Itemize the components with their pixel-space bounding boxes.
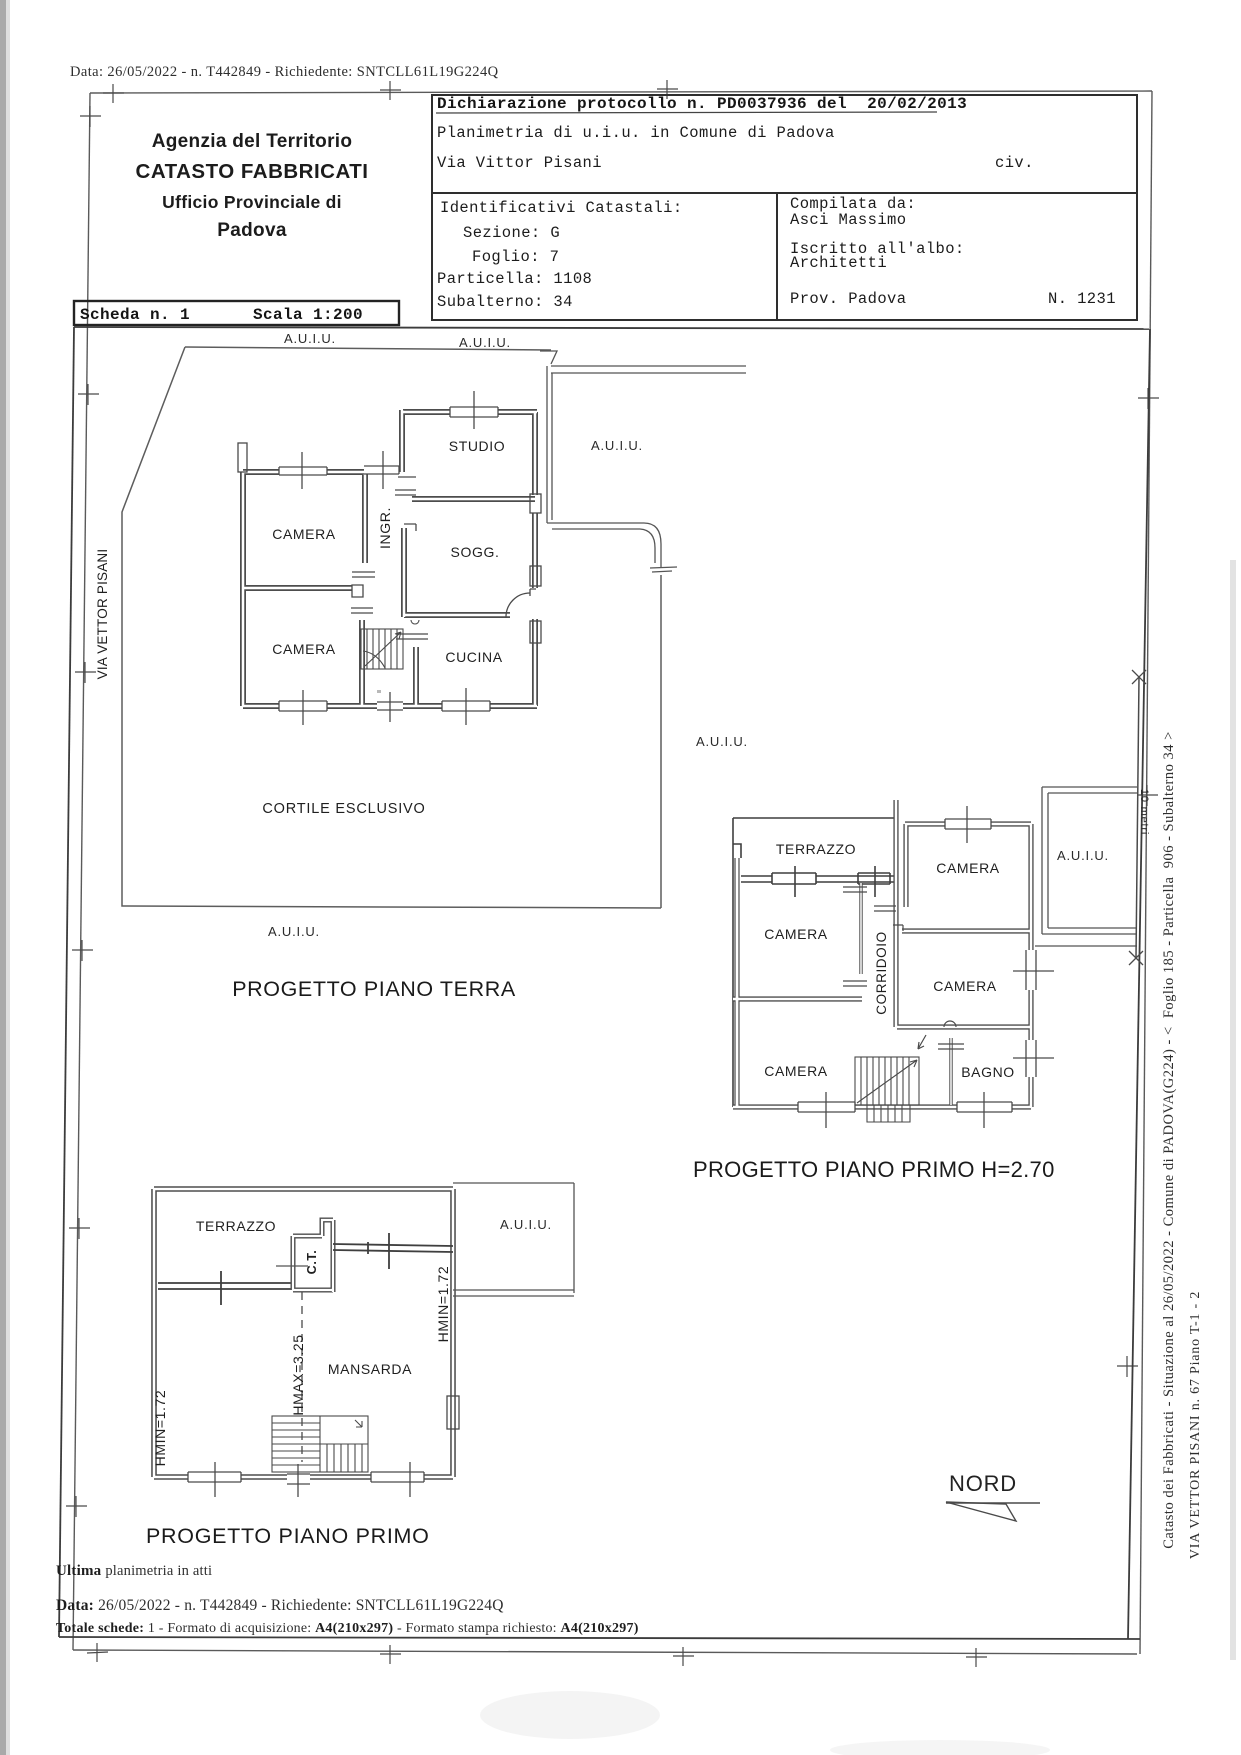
- svg-text:PROGETTO PIANO PRIMO H=2.70: PROGETTO PIANO PRIMO H=2.70: [693, 1157, 1055, 1182]
- svg-text:INGR.: INGR.: [377, 507, 393, 549]
- svg-text:HMIN=1.72: HMIN=1.72: [435, 1266, 451, 1343]
- svg-text:Foglio: 7: Foglio: 7: [472, 248, 559, 266]
- svg-text:N. 1231: N. 1231: [1048, 290, 1116, 308]
- svg-text:Prov. Padova: Prov. Padova: [790, 290, 906, 308]
- svg-text:Data: 26/05/2022 - n. T442849: Data: 26/05/2022 - n. T442849 - Richiede…: [56, 1597, 504, 1614]
- svg-text:Ufficio Provinciale di: Ufficio Provinciale di: [162, 192, 342, 212]
- svg-text:CAMERA: CAMERA: [272, 526, 336, 542]
- svg-text:A.U.I.U.: A.U.I.U.: [591, 438, 643, 453]
- svg-text:Asci Massimo: Asci Massimo: [790, 211, 906, 229]
- svg-text:Planimetria di u.i.u. in Comun: Planimetria di u.i.u. in Comune di Padov…: [437, 124, 835, 142]
- svg-text:Dichiarazione protocollo n. PD: Dichiarazione protocollo n. PD0037936 de…: [437, 95, 967, 113]
- svg-text:CUCINA: CUCINA: [445, 649, 502, 665]
- svg-text:CAMERA: CAMERA: [933, 978, 997, 994]
- svg-text:VIA VETTOR PISANI: VIA VETTOR PISANI: [95, 549, 110, 680]
- svg-text:Scala 1:200: Scala 1:200: [253, 306, 363, 324]
- svg-text:Padova: Padova: [217, 220, 287, 241]
- svg-text:NORD: NORD: [949, 1471, 1017, 1496]
- svg-text:TERRAZZO: TERRAZZO: [196, 1218, 276, 1234]
- svg-text:Data: 26/05/2022 - n. T442849: Data: 26/05/2022 - n. T442849 - Richiede…: [70, 64, 499, 80]
- svg-text:10 metri: 10 metri: [1138, 789, 1150, 835]
- svg-text:MANSARDA: MANSARDA: [328, 1361, 412, 1377]
- svg-text:Subalterno: 34: Subalterno: 34: [437, 293, 573, 311]
- svg-text:A.U.I.U.: A.U.I.U.: [284, 331, 336, 346]
- svg-text:Identificativi Catastali:: Identificativi Catastali:: [440, 199, 683, 217]
- svg-text:VIA VETTOR PISANI n. 67 Piano: VIA VETTOR PISANI n. 67 Piano T-1 - 2: [1188, 1291, 1203, 1559]
- svg-text:Totale schede: 1 - Formato di: Totale schede: 1 - Formato di acquisizio…: [56, 1621, 639, 1636]
- svg-text:civ.: civ.: [995, 154, 1034, 172]
- svg-text:Scheda n. 1: Scheda n. 1: [80, 306, 190, 324]
- svg-text:SOGG.: SOGG.: [451, 544, 500, 560]
- svg-text:STUDIO: STUDIO: [449, 438, 506, 454]
- svg-text:A.U.I.U.: A.U.I.U.: [1057, 848, 1109, 863]
- svg-text:PROGETTO PIANO PRIMO: PROGETTO PIANO PRIMO: [146, 1524, 430, 1548]
- svg-text:BAGNO: BAGNO: [961, 1064, 1015, 1080]
- svg-text:Ultima planimetria in atti: Ultima planimetria in atti: [56, 1563, 212, 1579]
- svg-text:Architetti: Architetti: [790, 254, 887, 272]
- svg-text:CAMERA: CAMERA: [764, 1063, 828, 1079]
- svg-text:A.U.I.U.: A.U.I.U.: [696, 734, 748, 749]
- svg-text:C.T.: C.T.: [305, 1250, 319, 1275]
- svg-text:HMIN=1.72: HMIN=1.72: [152, 1390, 168, 1467]
- svg-text:Via Vittor Pisani: Via Vittor Pisani: [437, 154, 602, 172]
- svg-text:Particella: 1108: Particella: 1108: [437, 270, 592, 288]
- svg-text:CAMERA: CAMERA: [272, 641, 336, 657]
- svg-text:HMAX=3.25: HMAX=3.25: [290, 1334, 306, 1415]
- svg-text:Catasto dei Fabbricati - Situa: Catasto dei Fabbricati - Situazione al 2…: [1161, 731, 1177, 1549]
- svg-text:CORRIDOIO: CORRIDOIO: [874, 931, 889, 1014]
- svg-text:CORTILE ESCLUSIVO: CORTILE ESCLUSIVO: [262, 801, 425, 817]
- svg-text:CATASTO FABBRICATI: CATASTO FABBRICATI: [136, 160, 369, 183]
- svg-text:PROGETTO PIANO TERRA: PROGETTO PIANO TERRA: [232, 977, 516, 1001]
- svg-text:CAMERA: CAMERA: [936, 860, 1000, 876]
- svg-text:A.U.I.U.: A.U.I.U.: [459, 335, 511, 350]
- svg-text:CAMERA: CAMERA: [764, 926, 828, 942]
- svg-text:Sezione: G: Sezione: G: [463, 224, 560, 242]
- svg-text:TERRAZZO: TERRAZZO: [776, 841, 856, 857]
- svg-text:Agenzia del Territorio: Agenzia del Territorio: [152, 131, 353, 152]
- svg-text:A.U.I.U.: A.U.I.U.: [500, 1217, 552, 1232]
- svg-text:A.U.I.U.: A.U.I.U.: [268, 924, 320, 939]
